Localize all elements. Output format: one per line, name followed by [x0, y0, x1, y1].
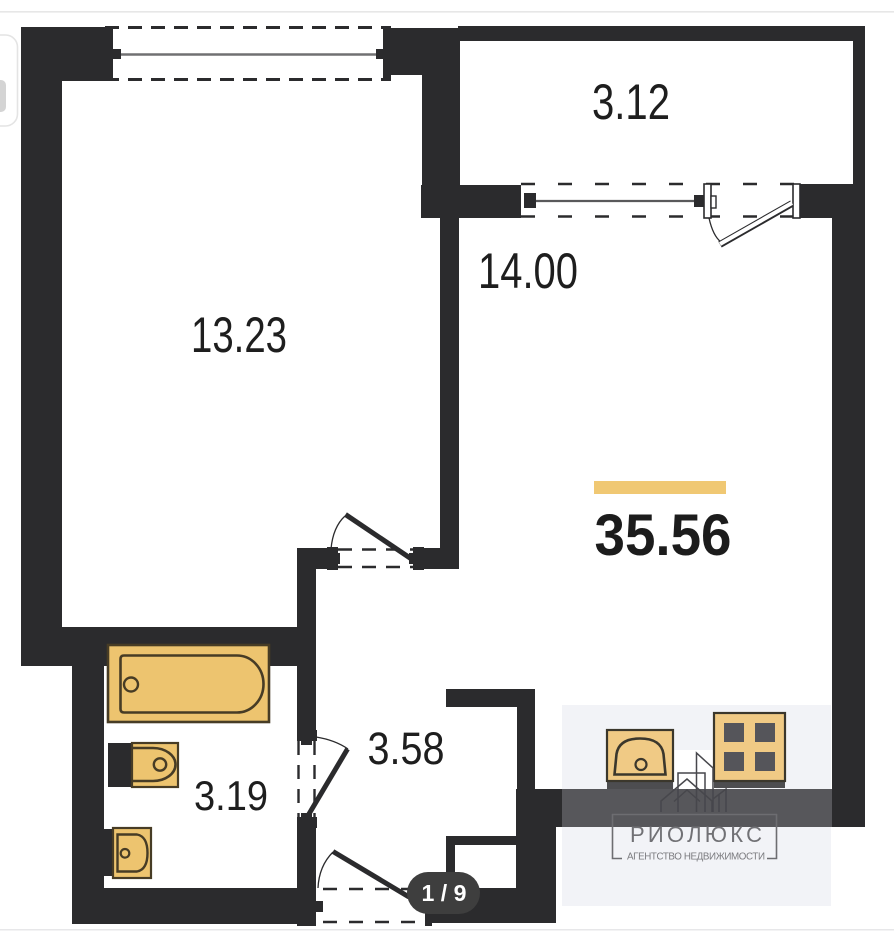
svg-text:РИОЛЮКС: РИОЛЮКС — [630, 822, 762, 847]
svg-text:3.58: 3.58 — [368, 723, 445, 774]
svg-text:3.19: 3.19 — [194, 772, 268, 819]
svg-text:35.56: 35.56 — [595, 503, 732, 568]
svg-text:1 / 9: 1 / 9 — [422, 880, 467, 906]
svg-text:14.00: 14.00 — [478, 243, 578, 299]
svg-text:3.12: 3.12 — [592, 74, 670, 130]
svg-text:АГЕНТСТВО НЕДВИЖИМОСТИ: АГЕНТСТВО НЕДВИЖИМОСТИ — [627, 852, 765, 863]
svg-text:13.23: 13.23 — [191, 307, 287, 363]
